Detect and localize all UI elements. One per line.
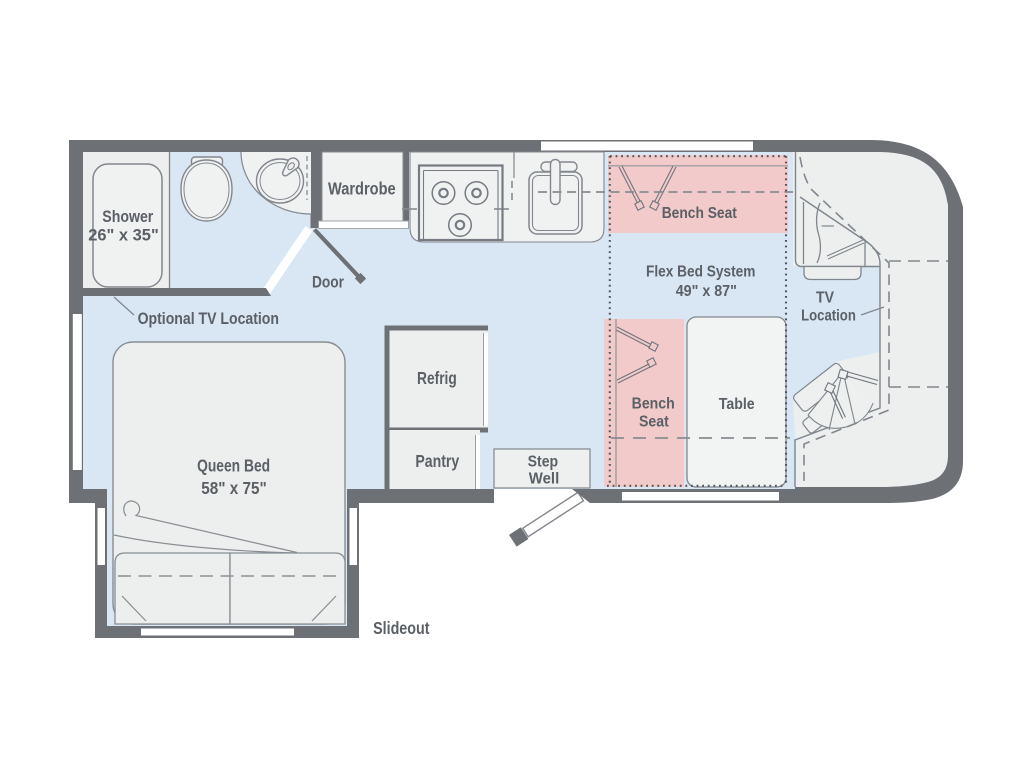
svg-text:Seat: Seat	[639, 413, 669, 430]
svg-text:49" x 87": 49" x 87"	[676, 283, 737, 300]
svg-text:Slideout: Slideout	[373, 618, 430, 638]
svg-text:Wardrobe: Wardrobe	[328, 179, 396, 199]
svg-text:Queen Bed: Queen Bed	[197, 456, 270, 476]
svg-text:Location: Location	[801, 308, 856, 325]
svg-text:Door: Door	[312, 272, 344, 291]
svg-text:Bench: Bench	[632, 396, 675, 413]
svg-text:TV: TV	[816, 289, 835, 306]
svg-text:Pantry: Pantry	[415, 451, 459, 471]
svg-text:58" x 75": 58" x 75"	[201, 478, 267, 498]
svg-text:Flex Bed System: Flex Bed System	[646, 264, 755, 281]
svg-text:Optional TV Location: Optional TV Location	[138, 309, 279, 328]
svg-text:Shower: Shower	[102, 207, 153, 226]
svg-text:Step: Step	[528, 454, 559, 471]
svg-text:Table: Table	[719, 396, 755, 413]
svg-text:Well: Well	[529, 470, 560, 487]
svg-text:Refrig: Refrig	[417, 368, 457, 388]
svg-text:Bench Seat: Bench Seat	[662, 205, 737, 222]
svg-text:26" x 35": 26" x 35"	[88, 226, 159, 245]
